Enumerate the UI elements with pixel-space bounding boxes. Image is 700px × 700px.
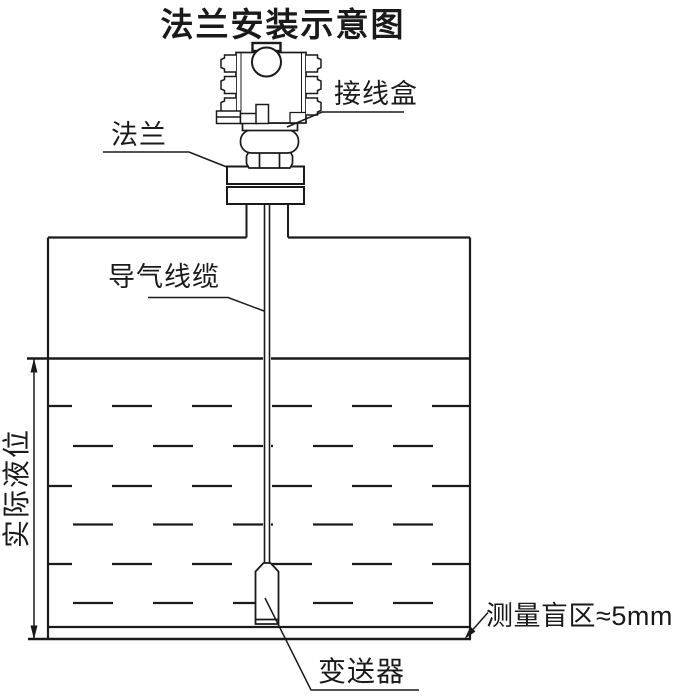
probe-weight (256, 563, 279, 624)
label-air-guide-cable: 导气线缆 (108, 262, 220, 293)
diagram-stage: 法兰安装示意图 接线盒 法兰 导气线缆 实际液位 变送器 测量盲区≈5mm (0, 0, 700, 700)
coupling-body (241, 130, 299, 153)
label-flange: 法兰 (111, 120, 167, 151)
label-junction-box: 接线盒 (334, 79, 418, 110)
tank-outline (28, 238, 471, 640)
air-cable-leader (148, 298, 264, 312)
label-transmitter: 变送器 (318, 656, 405, 688)
air-guide-cable (263, 204, 271, 565)
hex-nut (247, 152, 293, 169)
label-blind-zone: 测量盲区≈5mm (486, 601, 673, 632)
transmitter-head (217, 43, 322, 168)
sight-glass-icon (252, 48, 281, 77)
dimension-arrow-down-icon (31, 626, 38, 640)
diagram-title: 法兰安装示意图 (150, 6, 416, 44)
label-actual-level: 实际液位 (1, 408, 35, 568)
flange-leader (103, 152, 228, 168)
dimension-arrow-up-icon (31, 359, 38, 373)
